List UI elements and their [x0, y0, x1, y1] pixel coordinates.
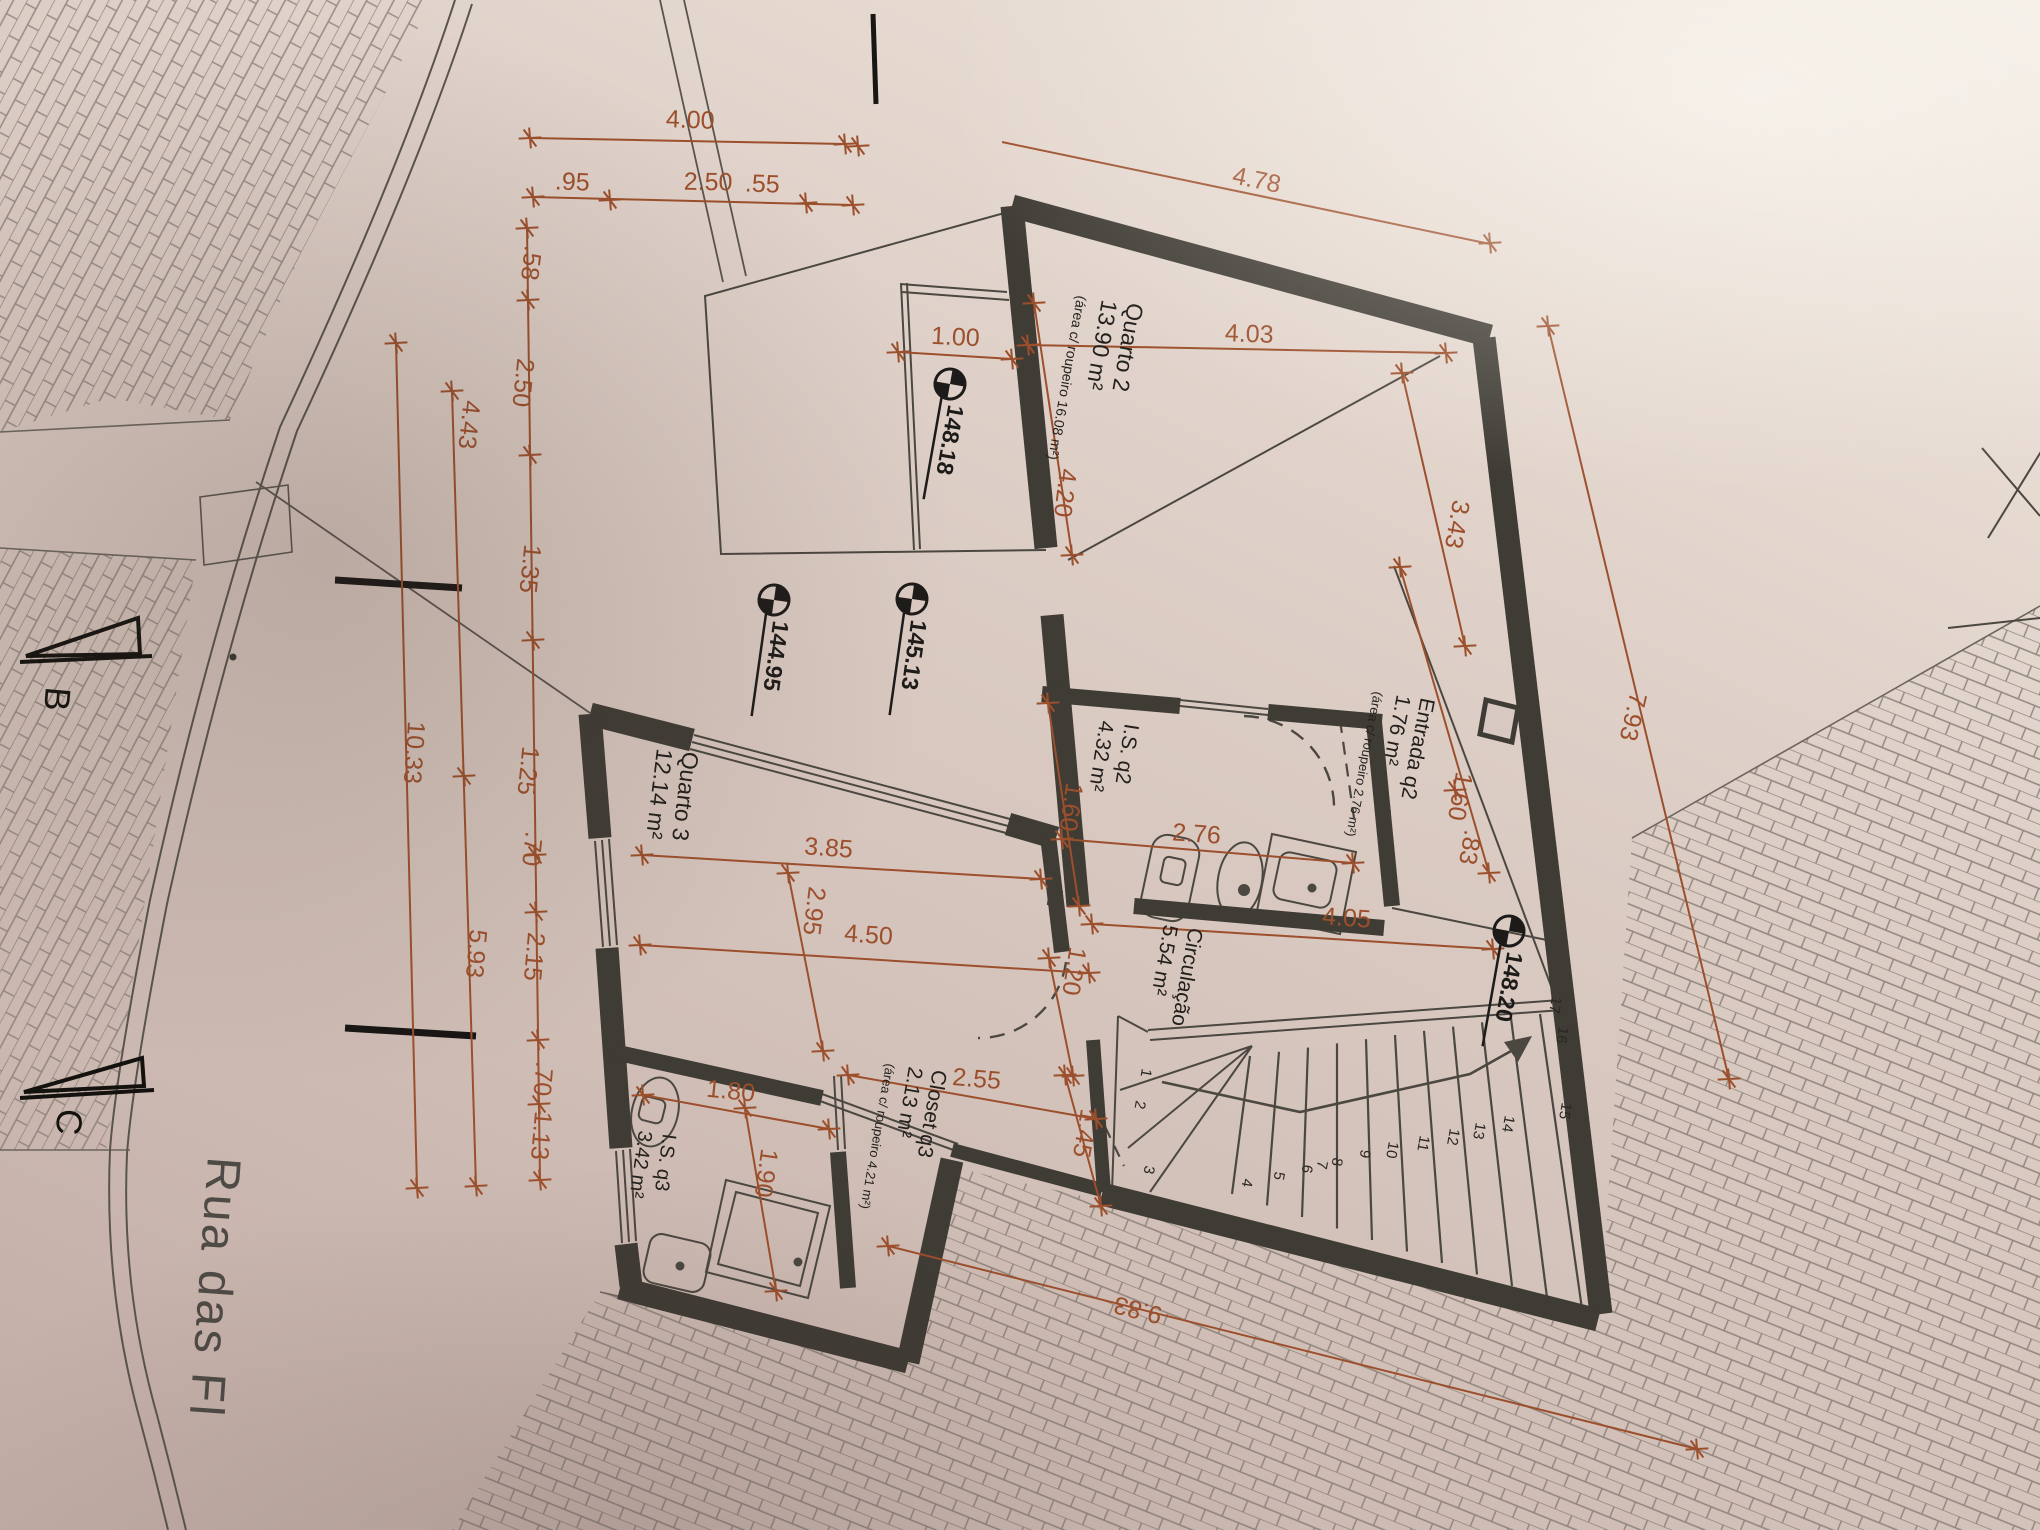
stair-step-number: 16: [1552, 1025, 1572, 1044]
elevation-marker: 148.18: [915, 367, 976, 505]
wall-wing-top-a: [590, 714, 692, 740]
window-wing-left-1: [595, 839, 617, 947]
stair-step-number: 5: [1270, 1170, 1288, 1181]
dimension-label: 1.20: [1056, 945, 1091, 997]
dimension-label: 4.43: [452, 399, 485, 450]
wall-upper-left: [1012, 206, 1046, 548]
wall-mid-b: [1268, 712, 1382, 722]
wall-wing-top-b: [1008, 824, 1056, 838]
dimension-label: 2.50: [684, 168, 733, 197]
dimension-label: 2.76: [1171, 818, 1222, 849]
dimension-label: 4.20: [1048, 467, 1082, 519]
elevation-marker: 144.95: [743, 583, 799, 720]
dimension-label: 2.95: [797, 885, 831, 937]
wall-wing-left-a: [590, 714, 600, 838]
stair-direction-arrow: [1162, 1046, 1520, 1112]
elevation-marker: 145.13: [881, 582, 937, 719]
window-quarto3-north: [690, 735, 1010, 833]
dimension-label: 4.50: [843, 919, 894, 950]
dimension-label: 1.35: [513, 543, 546, 594]
dimension-label: 2.15: [518, 931, 550, 982]
dimension-label: 5.93: [460, 928, 492, 979]
street-name: Rua das Fl: [179, 1155, 250, 1420]
right-edge-marks: [1948, 448, 2040, 628]
top-black-tick: [873, 14, 876, 104]
dimension-label: .95: [554, 167, 590, 196]
dimension-label: 10.33: [398, 720, 430, 784]
stair-step-number: 11: [1413, 1134, 1432, 1152]
stair-step-number: 10: [1382, 1140, 1402, 1159]
closet-door-thin: [834, 1075, 845, 1150]
stair-step-number: 15: [1555, 1101, 1575, 1120]
stair-step-number: 1: [1137, 1067, 1155, 1078]
hatch-area-left-strip: [0, 548, 196, 1150]
dimension-label: .70: [528, 1060, 559, 1097]
column-detail: [1480, 700, 1518, 742]
dimension-label: 1.80: [705, 1075, 756, 1108]
stair-step-number: 9: [1356, 1148, 1374, 1159]
wall-quarto3-east: [1048, 836, 1062, 952]
stair-arrow-head: [1504, 1036, 1532, 1062]
dimension-label: 1.25: [511, 745, 544, 796]
stair-left-edge: [1112, 1016, 1118, 1192]
dimension-label: 4.00: [665, 105, 715, 135]
section-marker-letter: B: [36, 685, 79, 712]
dimension-label: .70: [516, 830, 547, 868]
stair-step-number: 12: [1443, 1127, 1463, 1146]
wall-isq3-closet: [838, 1152, 848, 1288]
dimension-label: 3.85: [803, 832, 854, 863]
stair-step-number: 17: [1545, 995, 1565, 1014]
dimension-label: 1.13: [525, 1110, 557, 1161]
dimension-label: 1.00: [930, 322, 980, 353]
photographed-plan-sheet: 4.00.952.50.554.781.004.034.203.437.931.…: [0, 0, 2040, 1530]
room-label-closet-q3: (área c/ roupeiro 4.21 m²): [857, 1062, 897, 1210]
dimension-label: .83: [1453, 828, 1487, 867]
stair-landing-edge: [1392, 908, 1566, 944]
dimension-label: .58: [515, 244, 547, 282]
elevation-value: 148.18: [931, 403, 969, 477]
dimension-label: 2.55: [951, 1063, 1002, 1095]
floor-plan-drawing: 4.00.952.50.554.781.004.034.203.437.931.…: [0, 0, 2040, 1530]
dimension-label: 4.05: [1321, 902, 1372, 933]
dimension-label: 4.78: [1230, 161, 1283, 199]
stair-step-number: 3: [1140, 1164, 1158, 1175]
terrace-outline: [705, 212, 1046, 554]
dimension-label: .55: [744, 169, 780, 198]
thin-details: [335, 14, 1582, 1309]
section-marker-letter: C: [48, 1107, 91, 1136]
section-cut-bar-c: [345, 1028, 476, 1036]
stair-step-number: 13: [1469, 1121, 1489, 1140]
stair-step-number: 14: [1498, 1114, 1518, 1133]
dimension-label: 4.03: [1224, 319, 1274, 349]
stair-step-number: 4: [1238, 1177, 1256, 1188]
sliding-door-quarto2: [1180, 700, 1268, 715]
door-arc-entrada: [1244, 716, 1334, 812]
wall-right: [1484, 338, 1601, 1314]
survey-dot: [230, 654, 237, 661]
stair-step-number: 2: [1131, 1099, 1149, 1110]
dimension-label: 3.43: [1439, 498, 1475, 551]
section-cut-bar-b: [335, 580, 462, 588]
dimension-label: 2.50: [506, 357, 539, 408]
hatch-area-topleft: [0, 0, 432, 432]
